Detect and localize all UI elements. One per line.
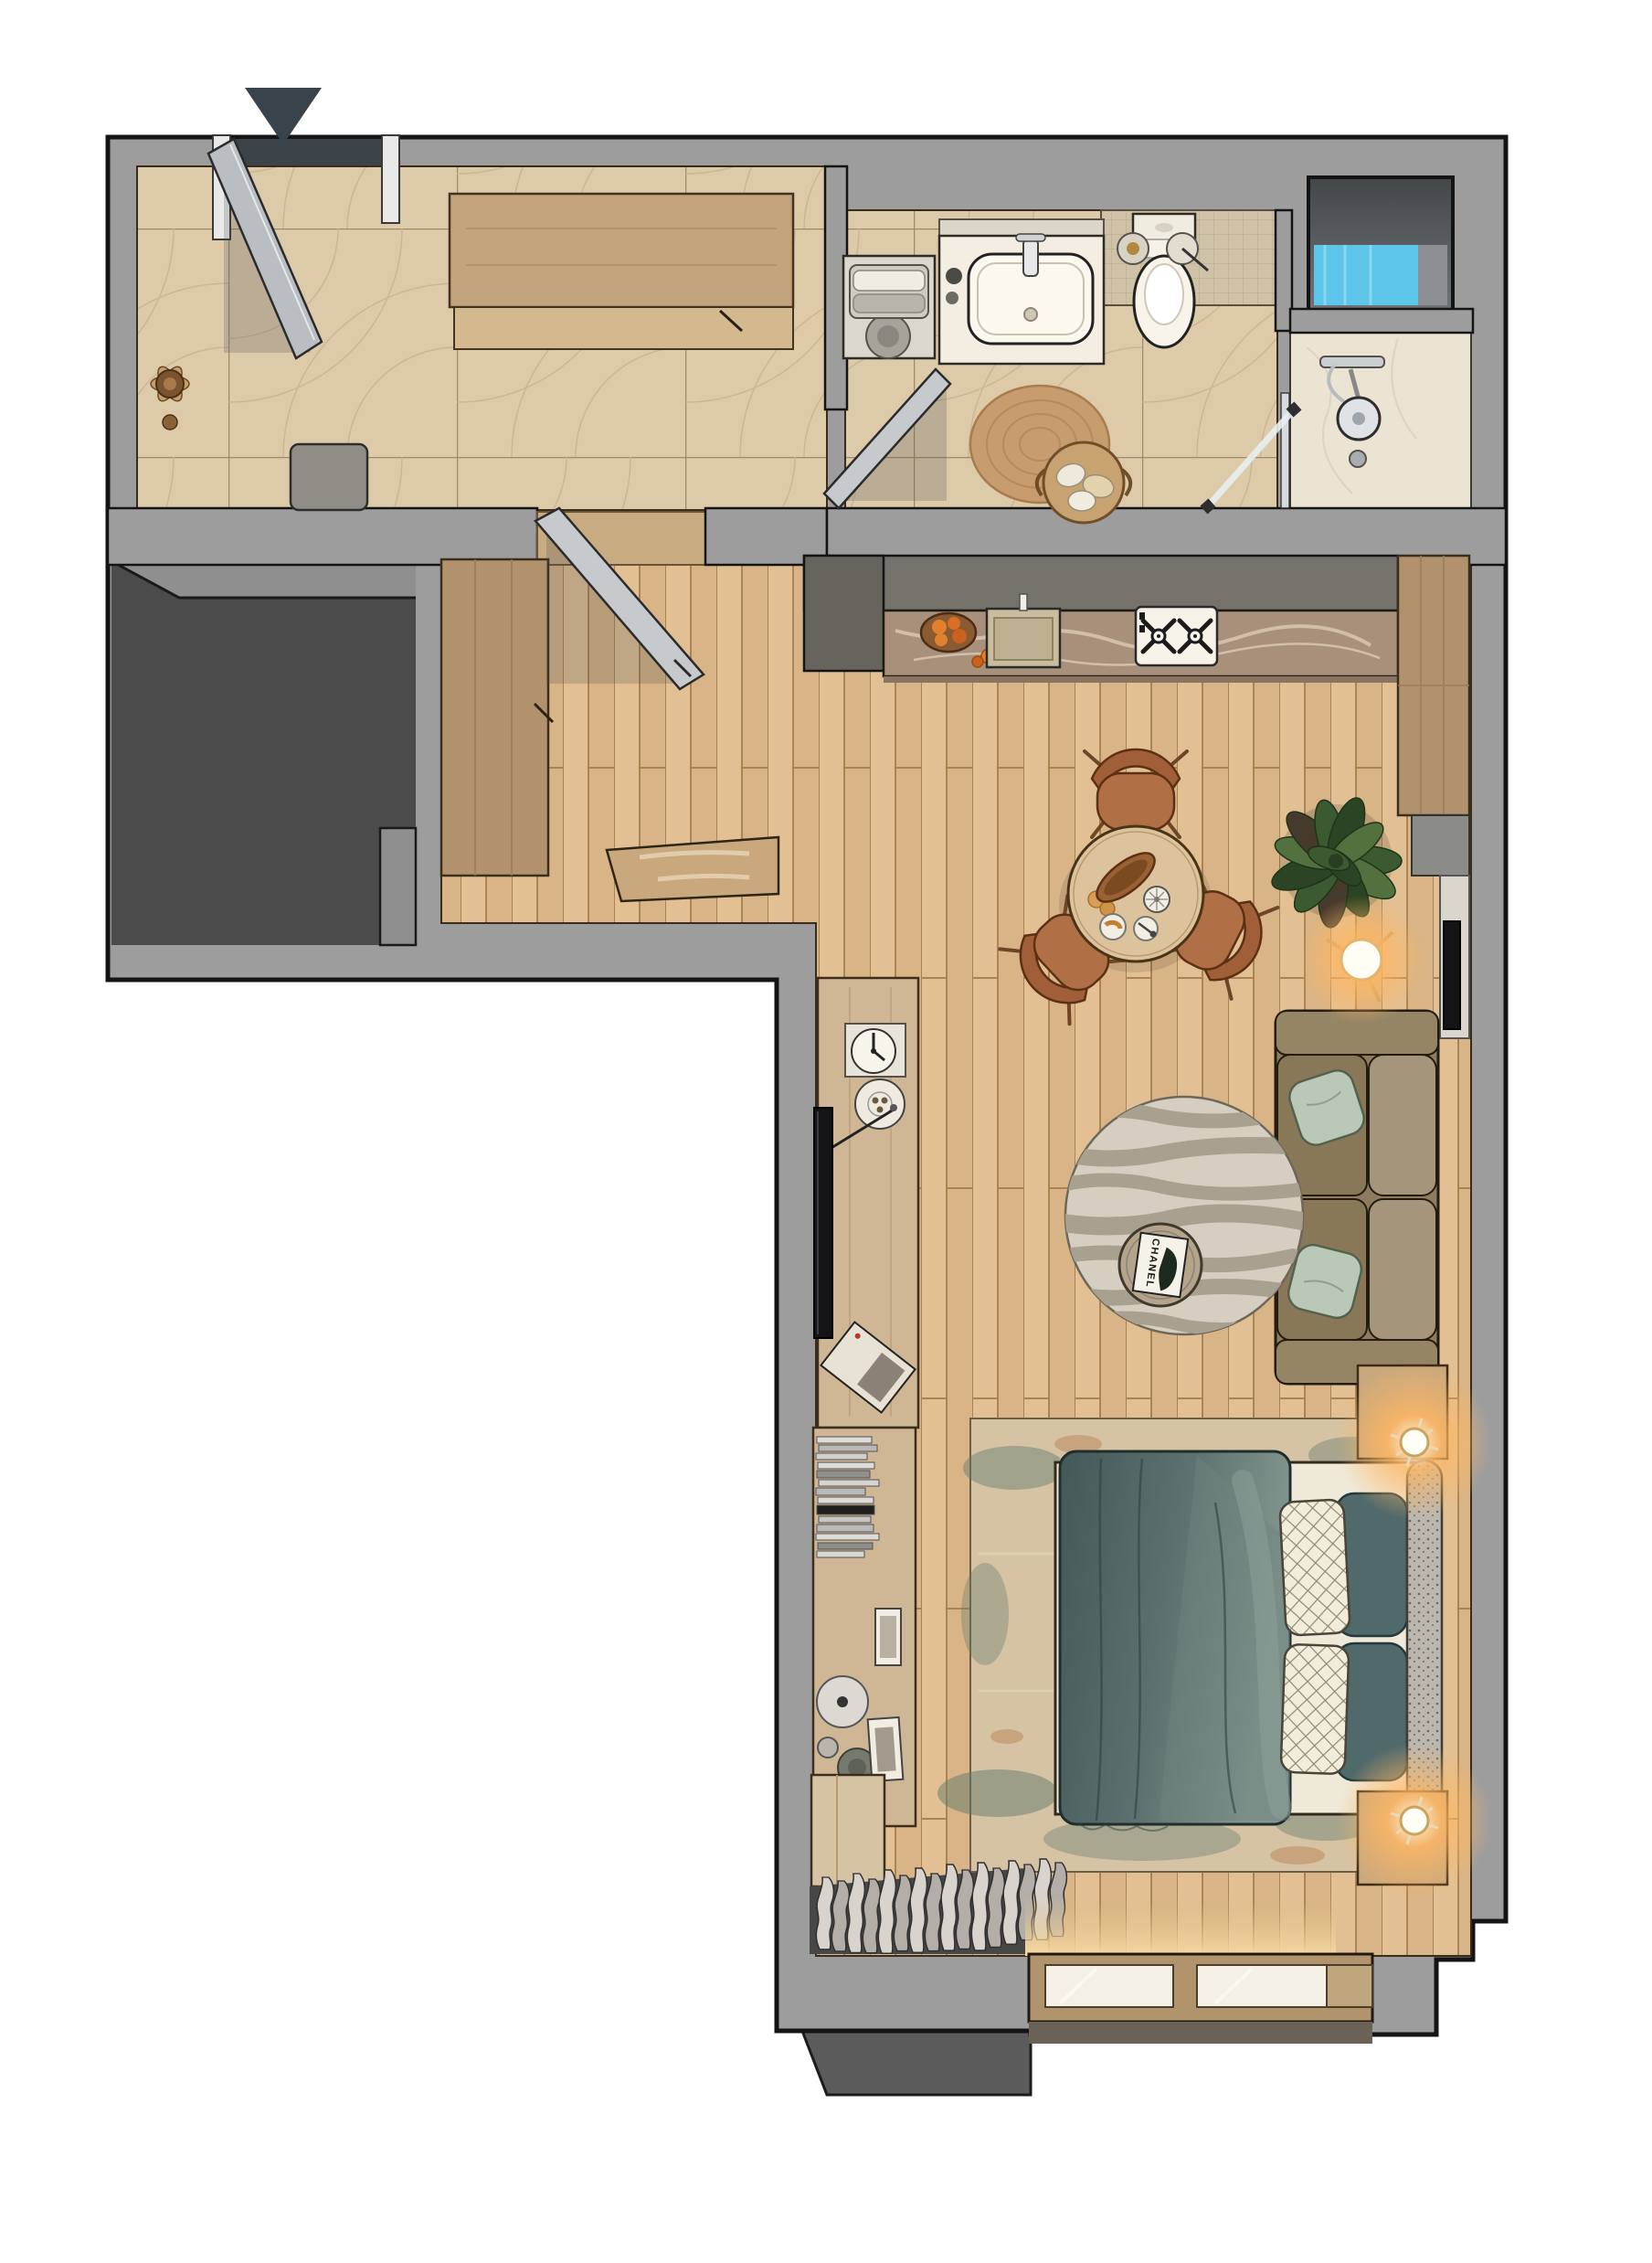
towel-stack	[850, 265, 928, 318]
shower-mixer	[1320, 356, 1384, 367]
small-cup	[818, 1737, 838, 1758]
gas-hob	[1136, 607, 1217, 665]
entry-bottom-wall-left	[108, 508, 537, 565]
floor-plan-svg: CHANEL	[0, 0, 1652, 2263]
coffee-table: CHANEL	[1119, 1224, 1202, 1306]
bookshelf	[813, 1428, 916, 1826]
wall-tv-panel	[1444, 921, 1460, 1029]
bedroom-sconce-north	[1337, 1365, 1492, 1520]
door-jamb	[382, 135, 399, 223]
exterior-shadow-strip	[802, 2031, 1031, 2095]
shower-top-wall	[1290, 309, 1473, 333]
corridor-cabinet	[441, 559, 553, 876]
tall-cabinet-column	[1398, 556, 1469, 815]
round-dining-table	[1068, 826, 1203, 962]
kitchen-left-column	[804, 556, 884, 671]
quilted-white-pillow	[1279, 1499, 1350, 1635]
tumbler	[946, 268, 962, 284]
floor-drain	[1350, 451, 1366, 467]
washing-machine	[843, 256, 935, 358]
bedroom-sconce-south	[1337, 1743, 1492, 1898]
coffee-table-book: CHANEL	[1133, 1233, 1188, 1298]
wall-niche	[1412, 815, 1469, 876]
window-floor-glow	[1025, 1897, 1336, 1956]
exterior-terrace-void	[111, 561, 416, 945]
sink-faucet	[1020, 594, 1027, 611]
corner-cabinet	[811, 1775, 884, 1886]
window-niche	[1308, 177, 1453, 311]
kitchen-upper-cabinets	[804, 556, 1398, 611]
sink-vanity	[939, 219, 1104, 364]
window-sill	[1029, 1954, 1372, 2044]
wall-clock	[845, 1024, 905, 1077]
bench-pouf	[291, 444, 367, 510]
window-outer-shadow	[1029, 2022, 1372, 2044]
quilted-white-pillow	[1281, 1644, 1350, 1774]
wardrobe-cabinet	[450, 194, 793, 349]
floor-plan-canvas: CHANEL	[0, 0, 1652, 2263]
floor-lamp	[1297, 896, 1425, 1024]
slate-duvet	[1060, 1451, 1290, 1831]
blue-glass	[1314, 245, 1418, 305]
tv-console	[814, 978, 918, 1428]
soap-dispenser	[946, 292, 958, 304]
cake-stand	[1144, 887, 1170, 912]
